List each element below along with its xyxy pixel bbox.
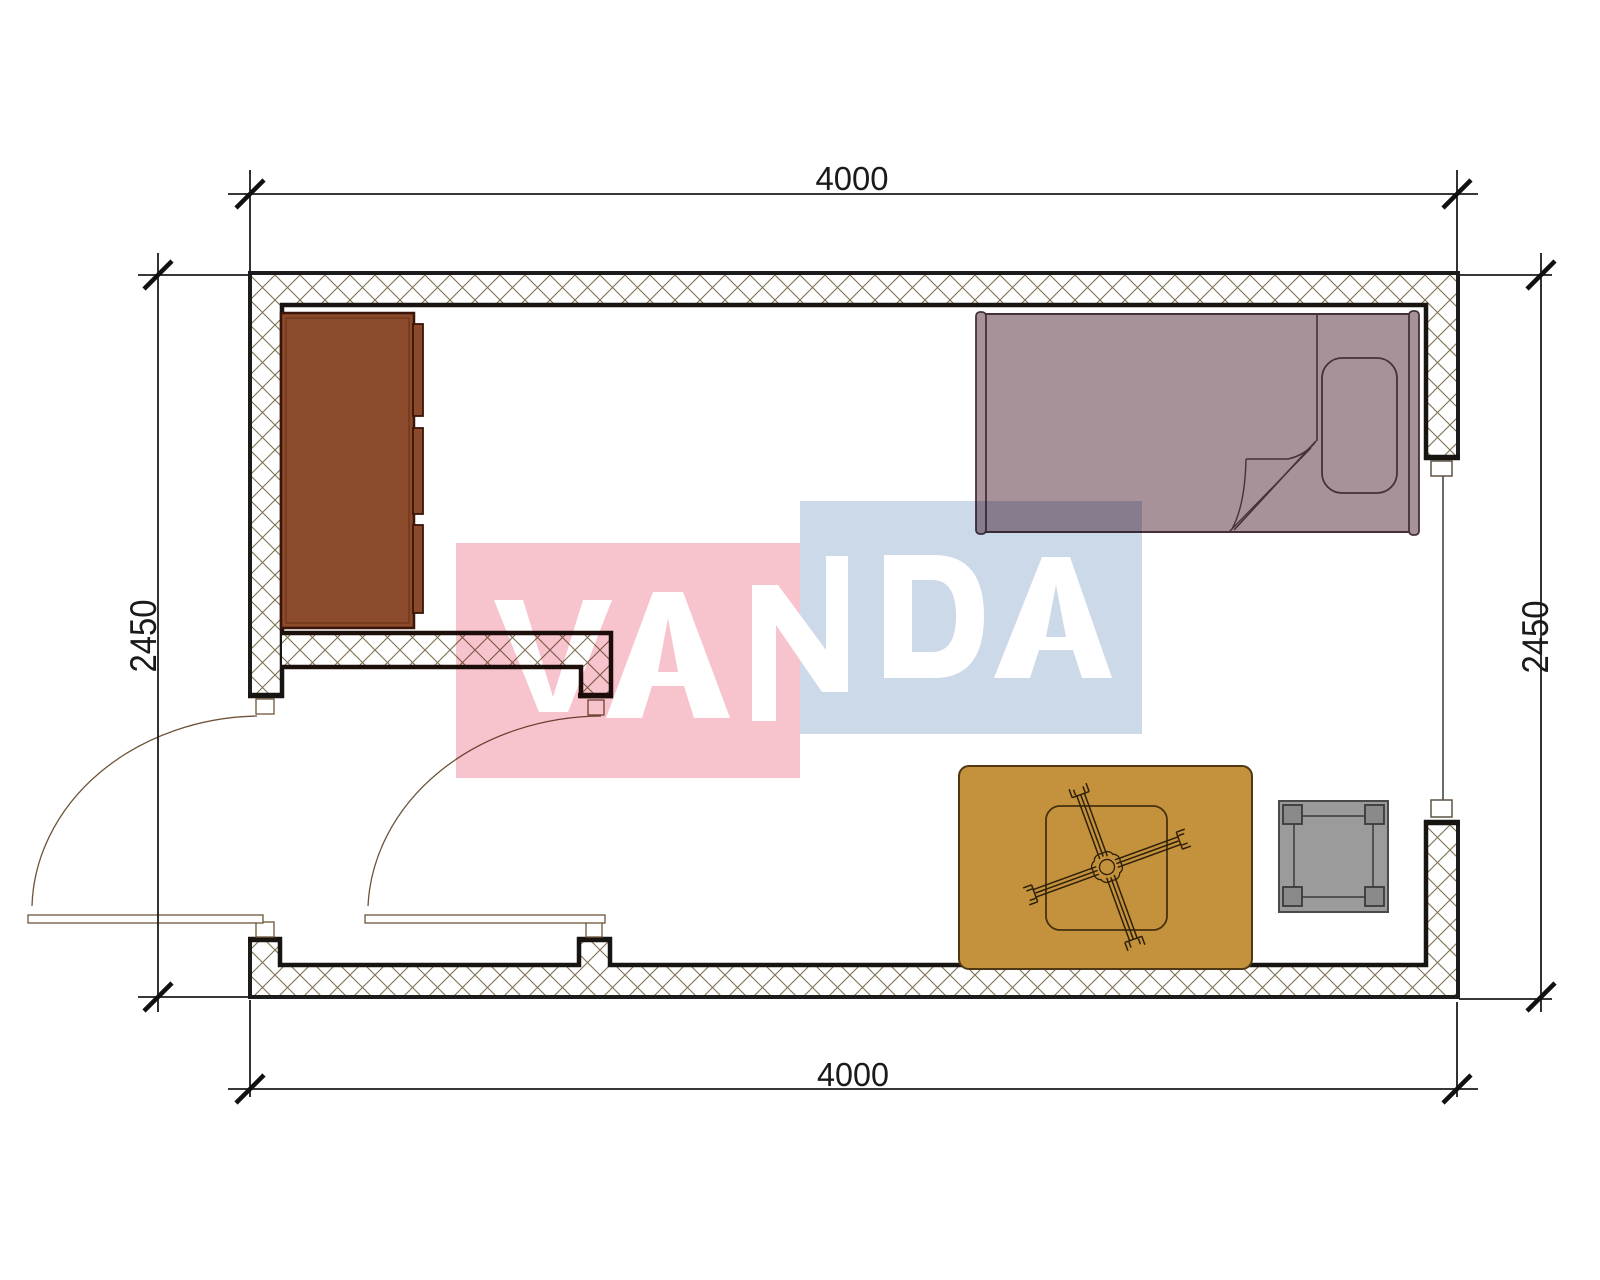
svg-text:2450: 2450 <box>123 600 164 673</box>
svg-text:4000: 4000 <box>817 1056 889 1093</box>
svg-text:4000: 4000 <box>816 160 889 197</box>
svg-text:2450: 2450 <box>1515 601 1556 674</box>
